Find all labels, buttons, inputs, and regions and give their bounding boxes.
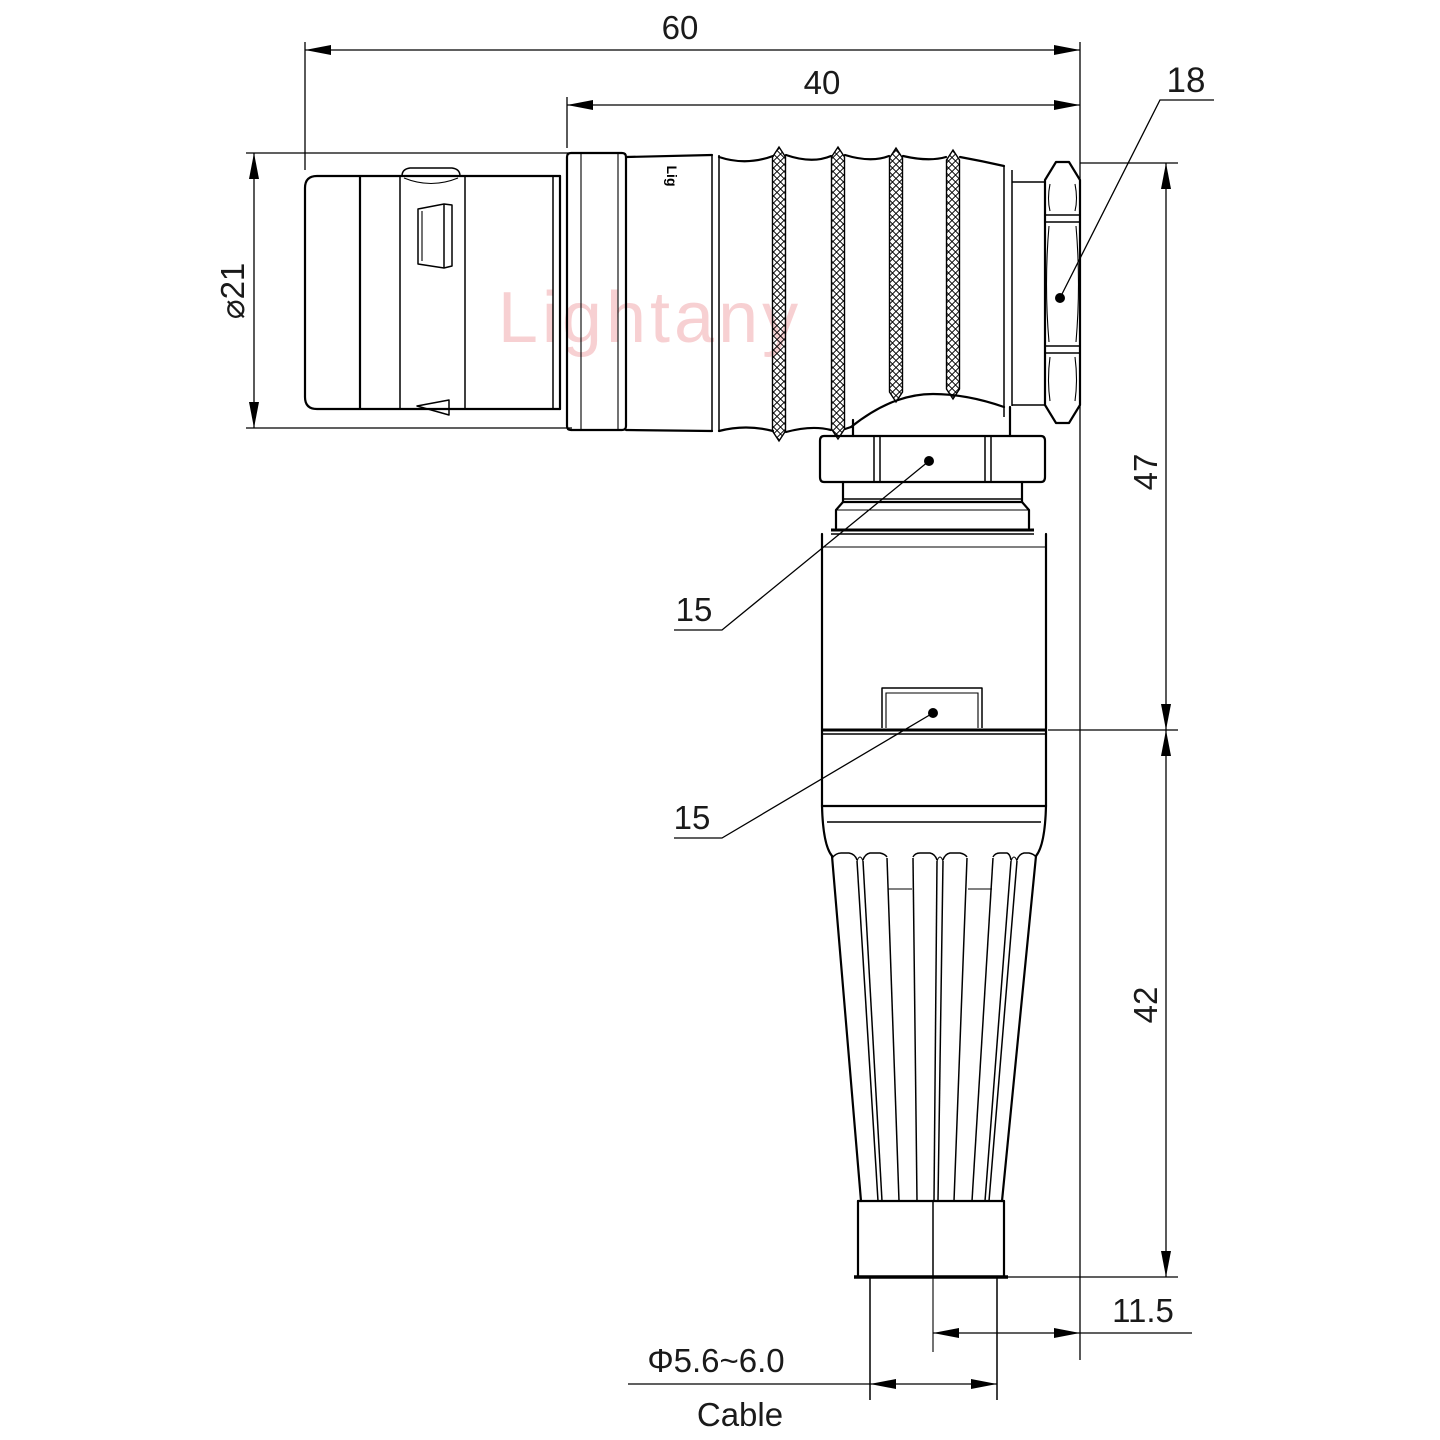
cable-diameter-label: Φ5.6~6.0: [647, 1342, 784, 1379]
leader-dot: [924, 456, 934, 466]
dimension-42-label: 42: [1127, 987, 1164, 1024]
part-marking-text: Lig: [664, 166, 680, 187]
dimension-height-upper: 47: [1048, 163, 1178, 730]
dimension-21-label: ⌀21: [214, 263, 251, 320]
dimension-11-5-label: 11.5: [1112, 1292, 1174, 1329]
keying-window: [418, 204, 452, 268]
dimension-overall-length: 60: [305, 9, 1080, 1360]
dimension-47-label: 47: [1127, 454, 1164, 491]
strain-relief-cone: [832, 853, 1036, 1400]
clamp-window: [882, 688, 982, 728]
dimension-axis-offset: 11.5: [933, 1292, 1192, 1338]
watermark: Lightany: [498, 278, 802, 358]
dimension-15a-label: 15: [676, 591, 713, 628]
vertical-elbow-body: [820, 407, 1046, 856]
dimension-body-length: 40: [567, 64, 1080, 148]
leader-nut-18: 18: [1055, 61, 1214, 303]
leader-dot: [928, 708, 938, 718]
latch-notch: [417, 400, 449, 415]
leader-clamp-15-lower: 15: [674, 708, 938, 838]
dimension-height-lower: 42: [1007, 730, 1178, 1277]
connector-technical-drawing: Lightany Lig: [0, 0, 1440, 1440]
cable-label: Cable: [697, 1396, 783, 1433]
leader-dot: [1055, 293, 1065, 303]
technical-drawing-page: Lightany Lig: [0, 0, 1440, 1440]
dimension-15b-label: 15: [674, 799, 711, 836]
cable-collar: [854, 1201, 1008, 1277]
dimension-18-label: 18: [1167, 61, 1206, 100]
dimension-cable-diameter: Φ5.6~6.0 Cable: [628, 1342, 997, 1433]
dimension-40-label: 40: [804, 64, 841, 101]
dimension-60-label: 60: [662, 9, 699, 46]
